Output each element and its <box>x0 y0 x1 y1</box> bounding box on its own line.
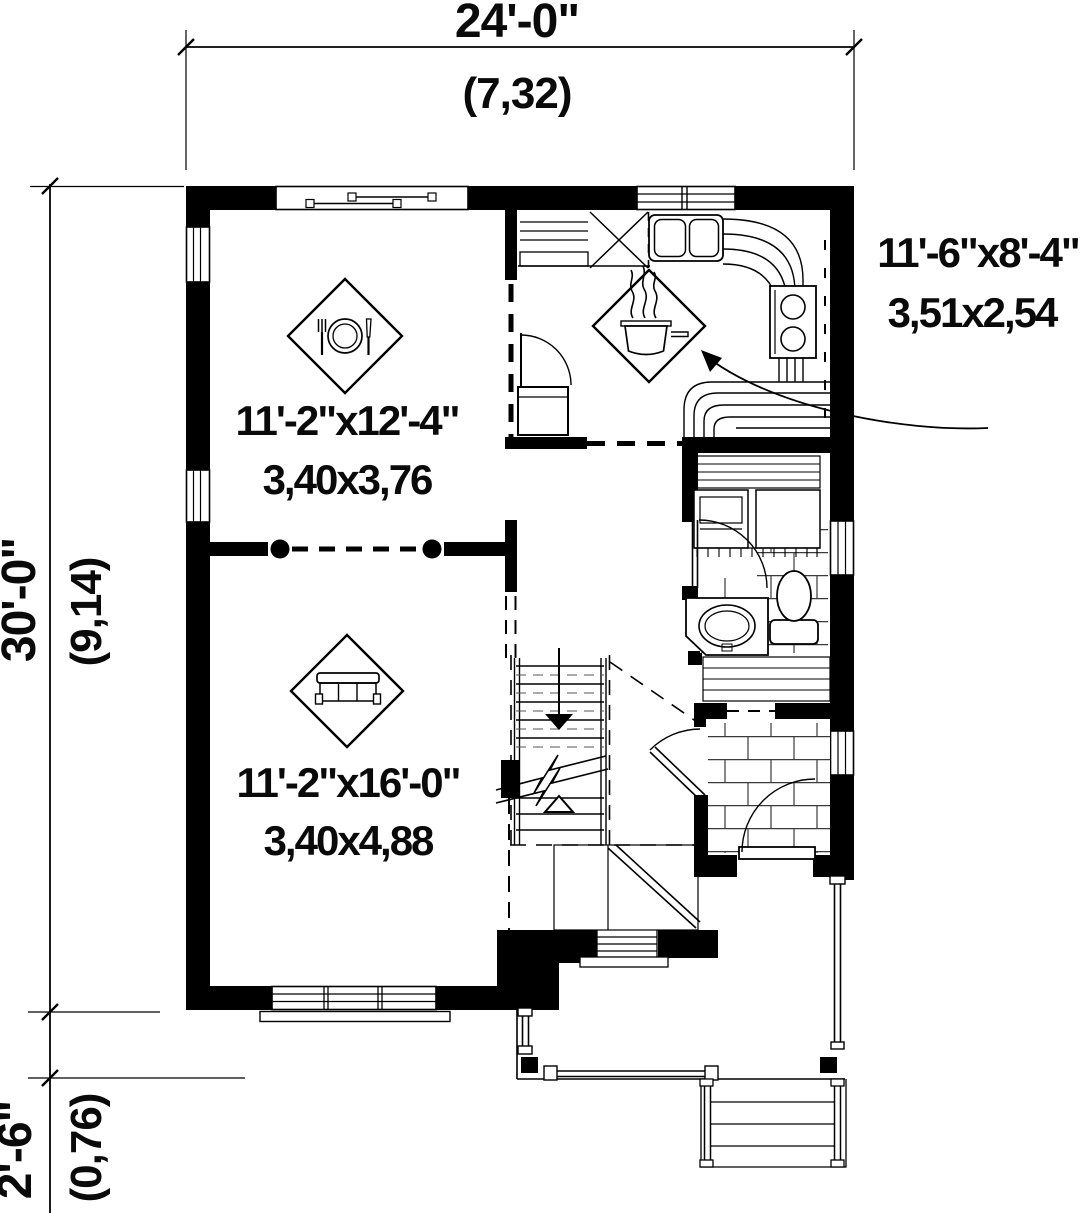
porch <box>517 876 846 1167</box>
bathroom-right-window <box>831 521 854 575</box>
overall-width-metric-label: (7,32) <box>463 72 572 116</box>
pantry-closet <box>518 333 571 435</box>
dining-room-size-imperial: 11'-2"x12'-4" <box>236 400 459 442</box>
dining-left-window-1 <box>187 227 210 282</box>
arrowhead-icon <box>701 350 722 372</box>
living-room-size-metric: 3,40x4,88 <box>264 820 433 862</box>
dining-top-window <box>276 187 468 210</box>
dining-room-size-metric: 3,40x3,76 <box>263 459 432 501</box>
kitchen-size-imperial: 11'-6"x8'-4" <box>877 232 1079 274</box>
entry-right-window <box>831 731 854 775</box>
overall-width-imperial-label: 24'-0" <box>455 0 579 46</box>
porch-post <box>820 1057 837 1073</box>
stove-icon <box>770 286 816 358</box>
kitchen-size-metric: 3,51x2,54 <box>888 292 1057 334</box>
kitchen-top-window <box>637 187 735 210</box>
porch-depth-metric-label: (0,76) <box>65 1094 109 1203</box>
double-sink-icon <box>649 215 723 261</box>
floor-plan-drawing <box>0 0 1080 1213</box>
overall-depth-imperial-label: 30'-0" <box>0 538 44 662</box>
bathroom-fixtures <box>686 456 830 701</box>
living-room-size-imperial: 11'-2"x16'-0" <box>237 762 460 804</box>
sofa-icon <box>291 635 403 747</box>
stairs <box>496 648 700 930</box>
living-bottom-window <box>260 987 450 1022</box>
floor-plan: 24'-0" (7,32) 30'-0" (9,14) 2'-6" (0,76)… <box>0 0 1080 1213</box>
dishwasher-icon <box>590 212 649 268</box>
porch-post <box>521 1057 538 1073</box>
stair-down-arrow <box>545 714 573 730</box>
place-setting-icon <box>288 279 402 393</box>
interior-front-door <box>650 729 705 800</box>
porch-railings <box>518 876 845 1080</box>
overall-depth-metric-label: (9,14) <box>65 558 109 667</box>
vanity-sink-icon <box>686 598 768 655</box>
dining-left-window-2 <box>187 470 210 522</box>
porch-steps <box>700 1079 846 1167</box>
cooking-pot-icon <box>593 266 705 382</box>
linen-closet <box>703 657 830 701</box>
porch-depth-imperial-label: 2'-6" <box>0 1101 40 1200</box>
